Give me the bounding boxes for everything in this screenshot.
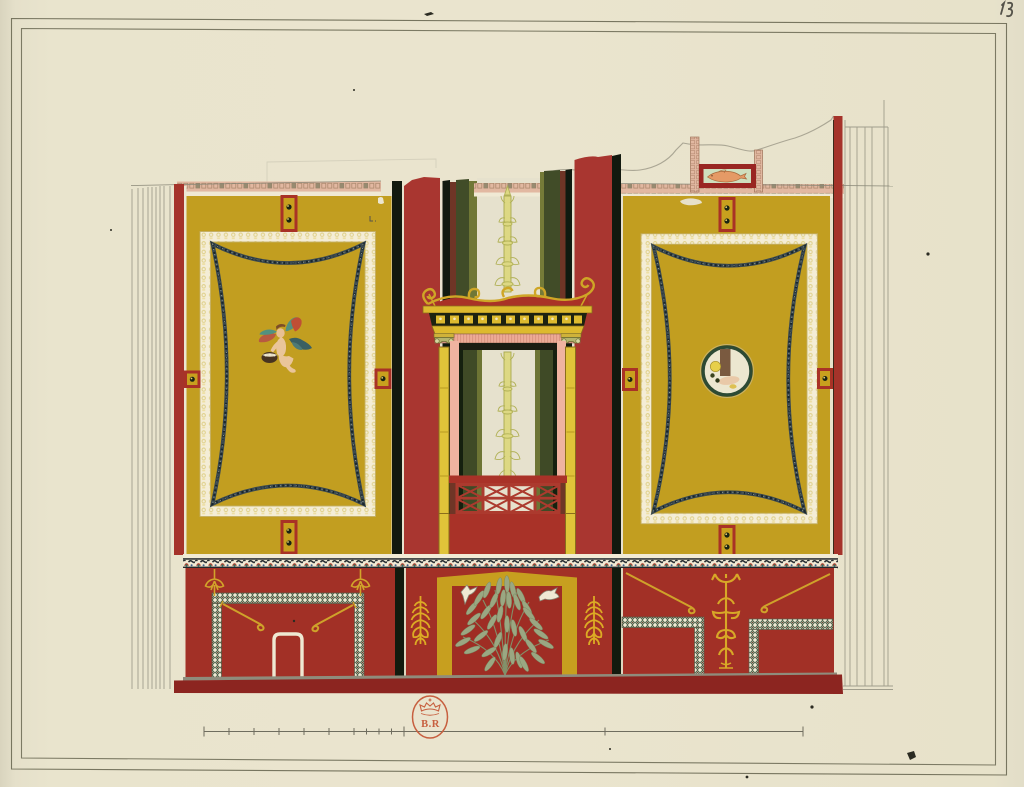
svg-text:B.R: B.R: [421, 719, 440, 730]
